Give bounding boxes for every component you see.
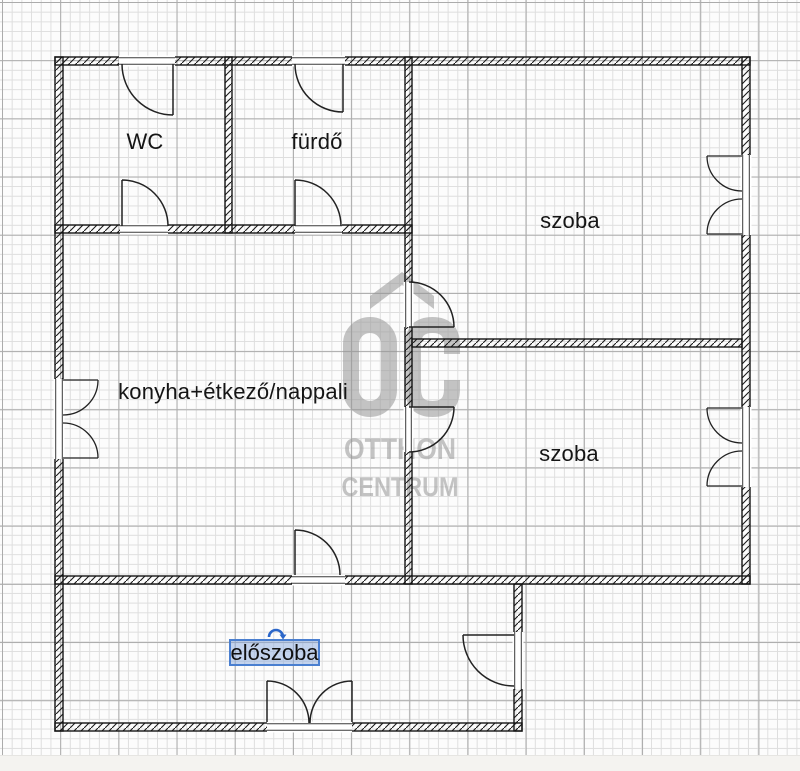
door-bathroom-top[interactable] xyxy=(295,64,343,112)
watermark-roof-icon xyxy=(370,272,434,309)
door-hallway-double-right-leaf[interactable] xyxy=(310,681,352,723)
room-label-room-top[interactable]: szoba xyxy=(540,208,600,234)
wall-main-bottom[interactable] xyxy=(55,576,750,584)
rotate-handle-icon[interactable] xyxy=(264,624,288,640)
selected-room-label-hallway[interactable]: előszoba xyxy=(229,639,320,666)
wall-exterior-right[interactable] xyxy=(742,57,750,584)
watermark-text-line2: CENTRUM xyxy=(342,472,459,502)
window-room-top-right[interactable] xyxy=(707,156,742,234)
door-wc-top[interactable] xyxy=(122,64,173,115)
door-bathroom-bottom[interactable] xyxy=(295,180,341,226)
window-room-middle-right[interactable] xyxy=(707,408,742,486)
room-label-bathroom[interactable]: fürdő xyxy=(291,129,342,155)
watermark-letter-c xyxy=(413,325,452,409)
door-kitchen-hallway[interactable] xyxy=(295,530,340,575)
selected-room-label-text: előszoba xyxy=(230,640,318,666)
door-wc-bottom[interactable] xyxy=(122,180,168,226)
window-kitchen-left[interactable] xyxy=(63,380,98,458)
wall-wc-bathroom-bottom[interactable] xyxy=(55,225,412,233)
floor-plan-canvas: OC OTTHON CENTRUM xyxy=(0,0,800,771)
wall-rooms-divider[interactable] xyxy=(412,339,742,347)
room-label-room-middle[interactable]: szoba xyxy=(539,441,599,467)
watermark-text-line1: OTTHON xyxy=(344,433,456,466)
watermark-letter-o xyxy=(351,325,389,409)
room-label-kitchen[interactable]: konyha+étkező/nappali xyxy=(118,379,348,405)
wall-wc-bathroom-divider[interactable] xyxy=(225,57,232,233)
door-hallway-double-left-leaf[interactable] xyxy=(267,681,309,723)
watermark-logo-oc: OC OTTHON CENTRUM xyxy=(342,272,459,502)
room-label-wc[interactable]: WC xyxy=(126,129,163,155)
door-hallway-right[interactable] xyxy=(463,635,514,686)
